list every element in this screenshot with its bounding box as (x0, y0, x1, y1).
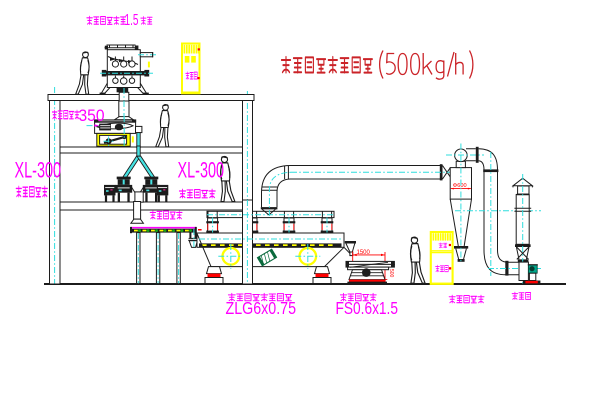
svg-text:Φ600: Φ600 (453, 183, 467, 189)
svg-text:FS0.6x1.5: FS0.6x1.5 (336, 298, 399, 318)
svg-text:500: 500 (388, 269, 394, 278)
svg-text:ZLG6x0.75: ZLG6x0.75 (226, 298, 297, 318)
svg-text:XL-300: XL-300 (178, 158, 225, 183)
svg-text:XL-300: XL-300 (15, 158, 62, 183)
svg-text:350: 350 (79, 106, 105, 125)
svg-text:1500: 1500 (357, 250, 371, 256)
svg-text:1.5: 1.5 (125, 12, 139, 29)
